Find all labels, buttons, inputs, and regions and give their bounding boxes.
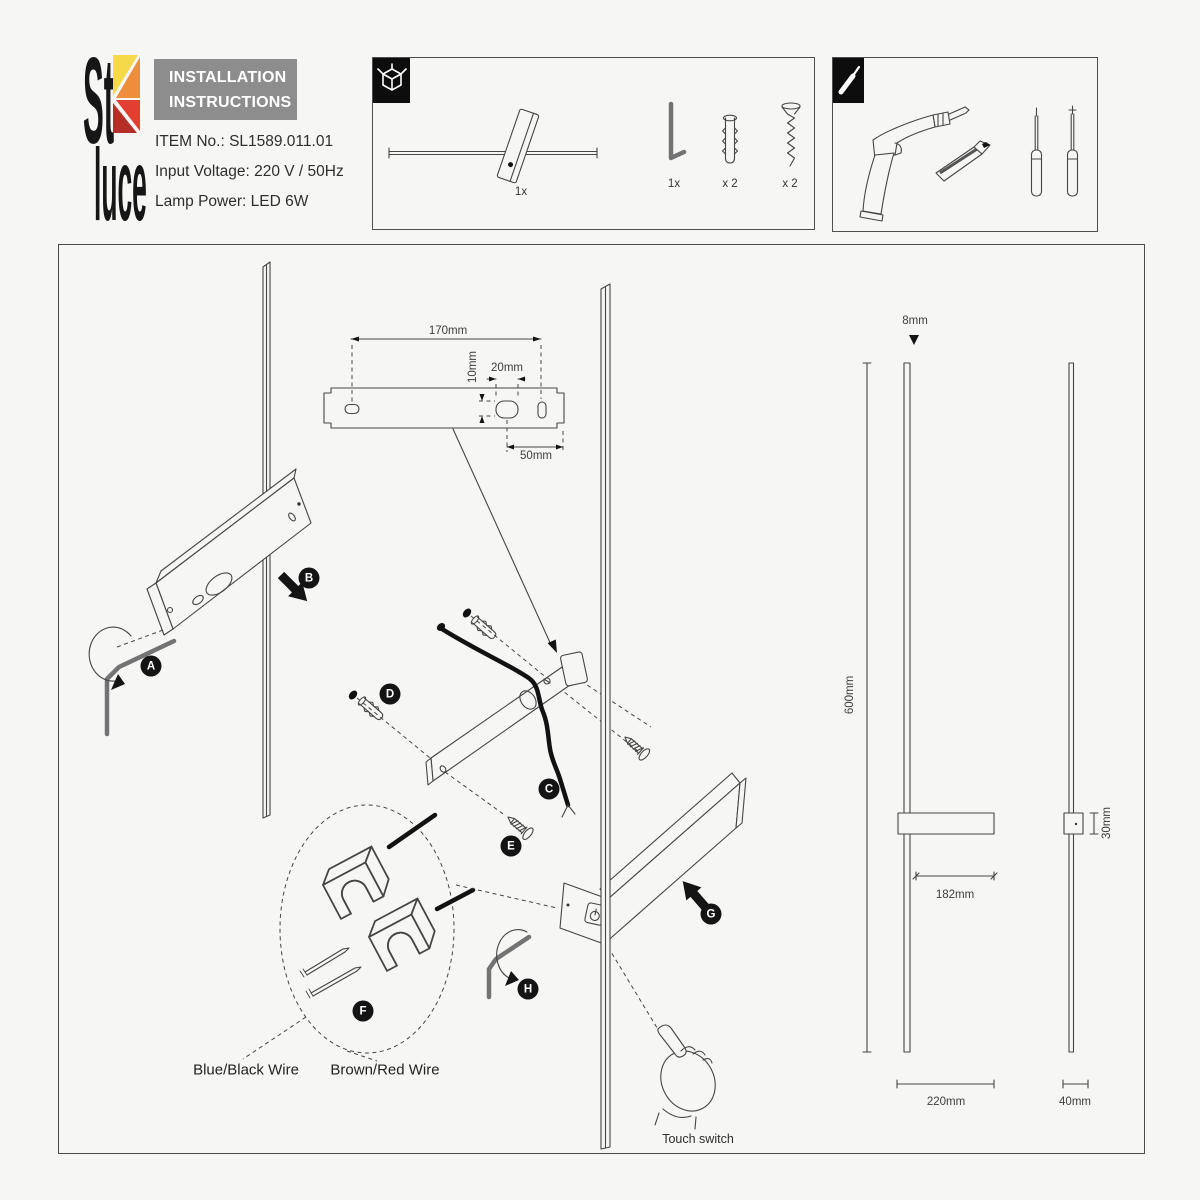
dim-hole-offset: 10mm [467, 351, 479, 383]
drill-hole-2 [347, 689, 359, 701]
step-badge-h: H [518, 979, 539, 1000]
step-badge-a: A [141, 656, 162, 677]
screw-qty: x 2 [782, 178, 797, 190]
step-badge-d: D [380, 684, 401, 705]
installation-diagram-frame: 170mm 10mm 20mm 50mm 8mm 600mm 182mm 30m… [58, 244, 1145, 1154]
stluce-logo: St luce [70, 48, 160, 228]
pointing-hand [650, 1025, 725, 1129]
leader-touch-switch [608, 947, 659, 1031]
dim-hole-to-end: 50mm [520, 450, 552, 462]
leader-wire-blue [243, 1017, 306, 1059]
dim-bracket-length: 170mm [429, 325, 467, 337]
package-contents-box: 1x 1x x 2 x 2 [372, 57, 815, 230]
step-badge-c: C [539, 779, 560, 800]
dim-side-depth: 40mm [1059, 1096, 1091, 1108]
title-line-1: INSTALLATION [169, 65, 297, 90]
pencil-icon [936, 141, 990, 181]
hex-key-a [89, 627, 174, 734]
lamp-qty: 1x [515, 186, 527, 198]
page-title: INSTALLATION INSTRUCTIONS [154, 59, 297, 120]
dimension-views [863, 335, 1098, 1088]
step-badge-e: E [501, 836, 522, 857]
hex-key-icon [671, 104, 684, 158]
drill-hole-1 [461, 607, 473, 619]
mounting-bracket-iso [426, 651, 588, 785]
wire-label-brown-red: Brown/Red Wire [330, 1062, 439, 1079]
step-badge-b: B [299, 568, 320, 589]
dowel-qty: x 2 [722, 178, 737, 190]
mounting-screw-1 [620, 732, 651, 762]
wall-box-housing [147, 469, 311, 635]
touch-switch-label: Touch switch [662, 1132, 734, 1146]
supply-wires [300, 948, 361, 998]
wire-connector-1 [318, 847, 395, 919]
leader-circle-housing [456, 885, 557, 908]
dim-slot-width: 20mm [491, 362, 523, 374]
dim-mount-depth: 30mm [1101, 807, 1113, 839]
dim-arm-length: 182mm [936, 889, 974, 901]
wire-label-blue-black: Blue/Black Wire [193, 1062, 299, 1079]
lamp-drawing [389, 109, 597, 184]
wall-dowel-1 [469, 614, 498, 642]
mounting-bracket-plan [324, 337, 564, 654]
input-voltage: Input Voltage: 220 V / 50Hz [155, 163, 344, 181]
tools-box [832, 57, 1098, 232]
dim-lamp-height: 600mm [844, 676, 856, 714]
logo-text-bottom: luce [94, 128, 147, 228]
package-contents-drawing [373, 58, 814, 228]
step-badge-f: F [353, 1001, 374, 1022]
phillips-screwdriver-icon [1068, 106, 1078, 196]
screw-icon [782, 103, 800, 166]
dim-base-width: 220mm [927, 1096, 965, 1108]
lamp-power: Lamp Power: LED 6W [155, 193, 308, 211]
installation-diagram [59, 245, 1144, 1153]
dim-rod-diameter: 8mm [902, 315, 928, 327]
connector-wire-out-1 [389, 815, 435, 847]
connector-wire-out-2 [437, 890, 473, 909]
hex-key-qty: 1x [668, 178, 680, 190]
item-number: ITEM No.: SL1589.011.01 [155, 133, 333, 151]
wire-connector-2 [364, 899, 441, 971]
title-line-2: INSTRUCTIONS [169, 90, 297, 115]
dowel-icon [723, 115, 738, 163]
guide-line-hexkey-a [117, 630, 163, 647]
step-badge-g: G [701, 904, 722, 925]
tools-drawing [833, 58, 1097, 230]
lamp-rod-middle [601, 284, 610, 1149]
flathead-screwdriver-icon [1032, 108, 1042, 196]
